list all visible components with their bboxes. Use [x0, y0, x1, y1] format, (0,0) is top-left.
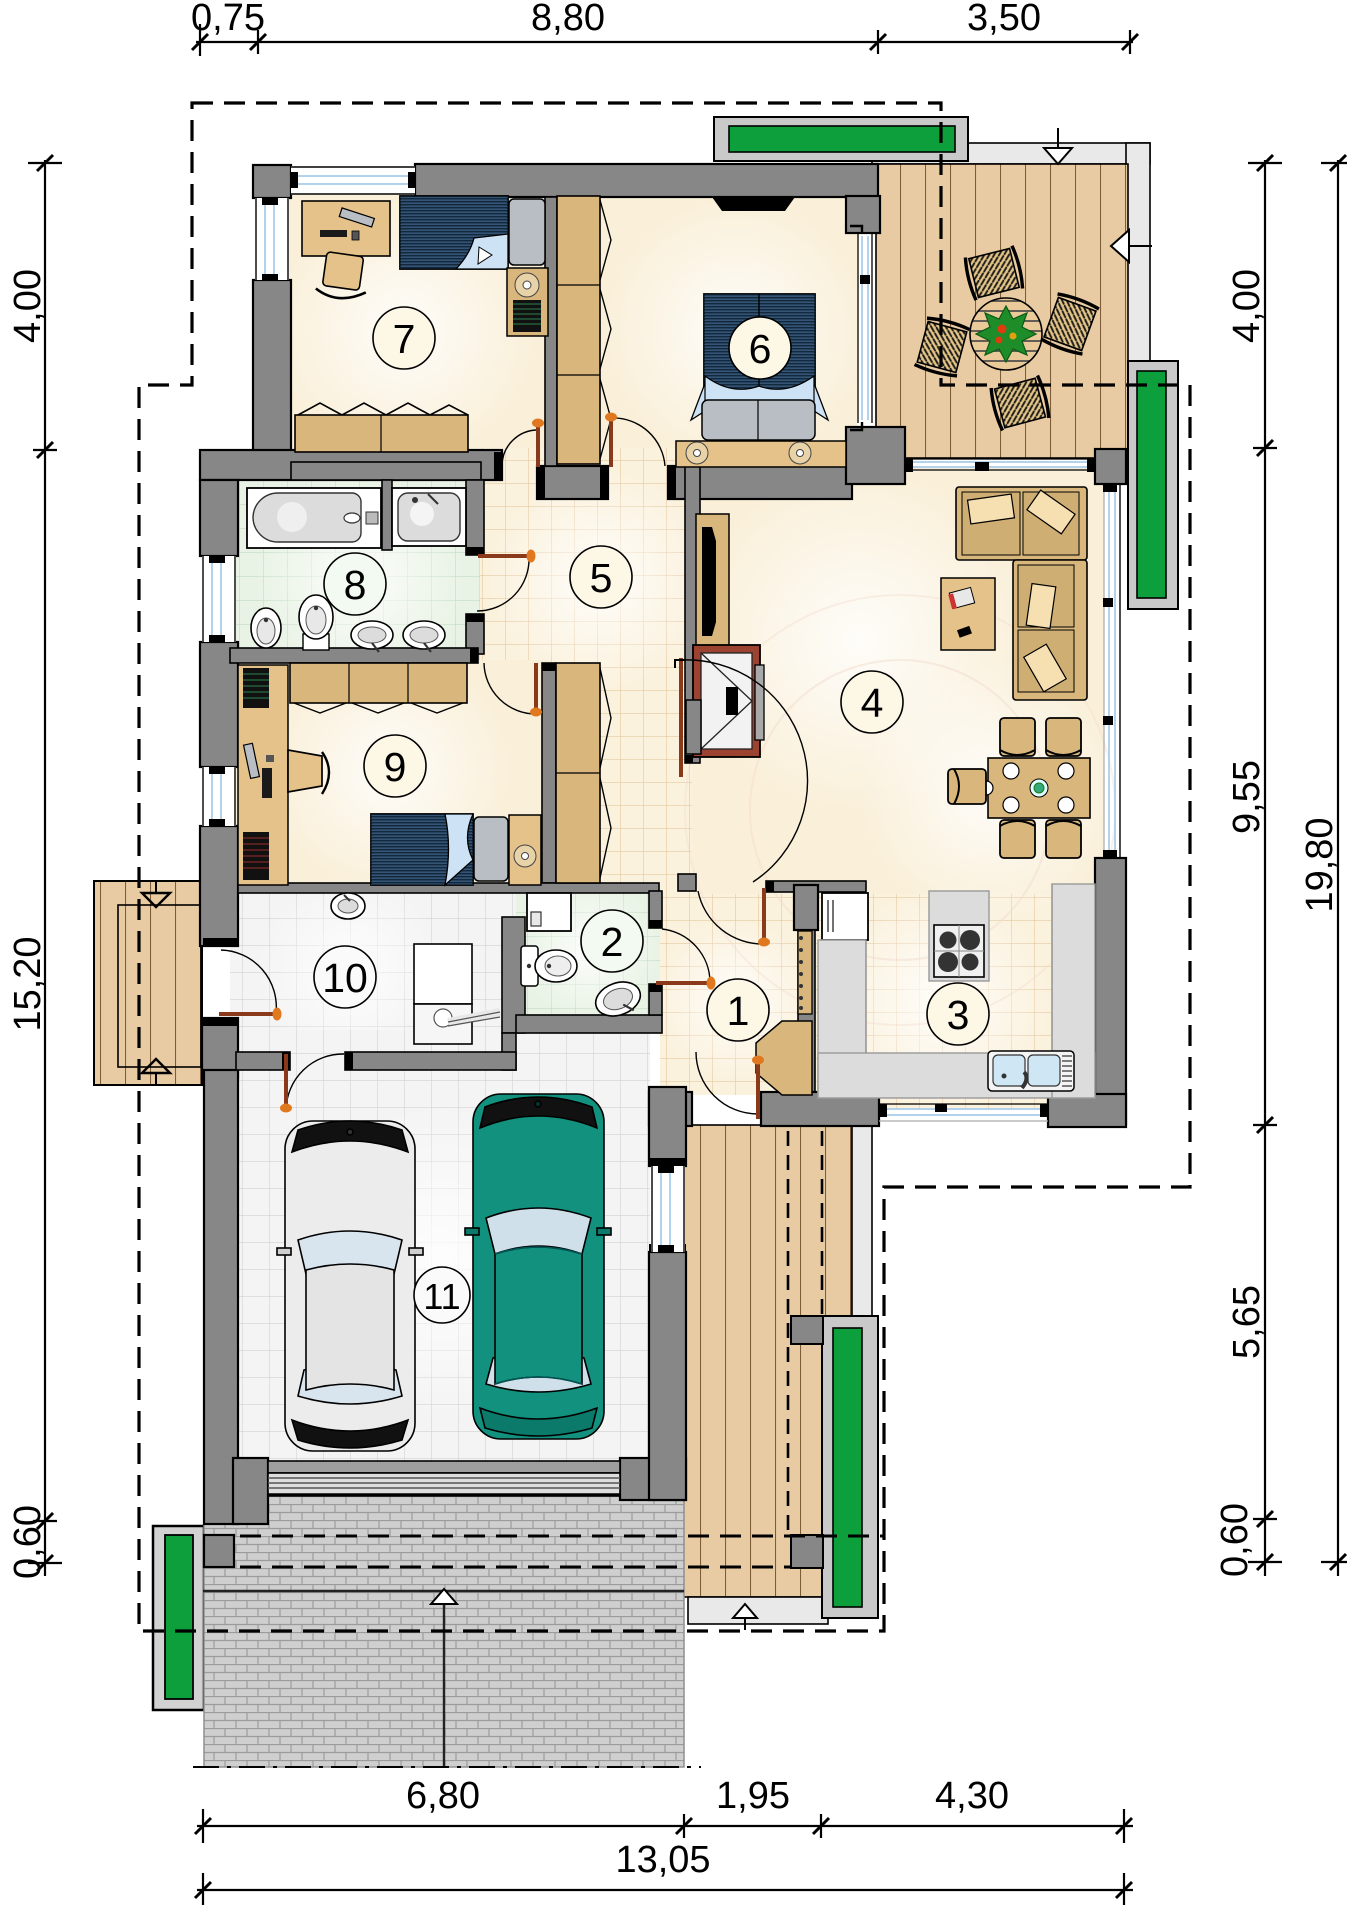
svg-text:9,55: 9,55: [1226, 760, 1268, 834]
svg-text:0,60: 0,60: [7, 1505, 49, 1579]
svg-text:4,00: 4,00: [7, 269, 49, 343]
svg-text:10: 10: [322, 955, 368, 1001]
svg-text:3: 3: [947, 992, 970, 1038]
svg-text:4,00: 4,00: [1226, 269, 1268, 343]
svg-text:9: 9: [384, 744, 407, 790]
svg-text:19,80: 19,80: [1299, 817, 1341, 912]
svg-text:0,60: 0,60: [1214, 1503, 1256, 1577]
svg-text:7: 7: [393, 316, 416, 362]
svg-text:4,30: 4,30: [935, 1775, 1009, 1817]
svg-text:8: 8: [344, 562, 367, 608]
svg-text:5,65: 5,65: [1226, 1285, 1268, 1359]
svg-text:1: 1: [727, 988, 750, 1034]
svg-text:5: 5: [590, 555, 613, 601]
svg-text:11: 11: [423, 1276, 460, 1317]
svg-text:3,50: 3,50: [967, 0, 1041, 39]
svg-text:1,95: 1,95: [716, 1775, 790, 1817]
svg-text:6: 6: [749, 326, 772, 372]
svg-text:8,80: 8,80: [531, 0, 605, 39]
svg-text:0,75: 0,75: [191, 0, 265, 39]
svg-text:15,20: 15,20: [7, 936, 49, 1031]
svg-text:2: 2: [601, 919, 624, 965]
svg-text:6,80: 6,80: [406, 1775, 480, 1817]
svg-text:13,05: 13,05: [615, 1839, 710, 1881]
svg-text:4: 4: [861, 680, 884, 726]
